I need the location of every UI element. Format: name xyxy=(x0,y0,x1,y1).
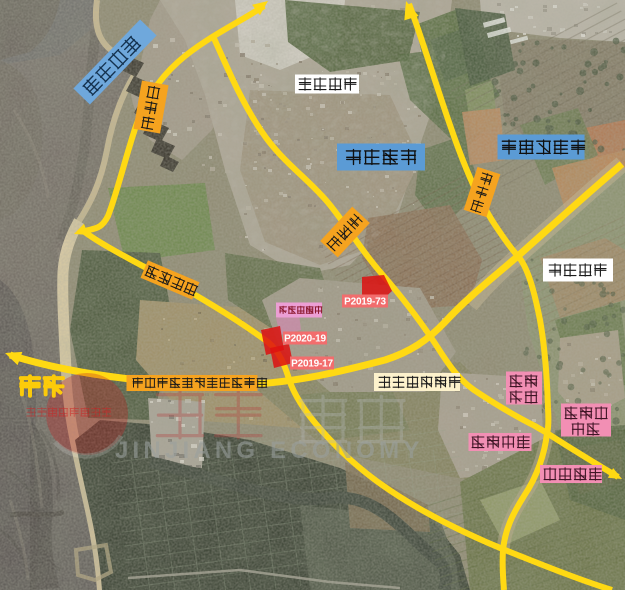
svg-text:JINJIANG ECONOMY: JINJIANG ECONOMY xyxy=(115,437,424,464)
svg-text:P2019-73: P2019-73 xyxy=(344,297,386,308)
svg-text:P2019-17: P2019-17 xyxy=(291,359,333,370)
svg-text:P2020-19: P2020-19 xyxy=(284,334,326,345)
